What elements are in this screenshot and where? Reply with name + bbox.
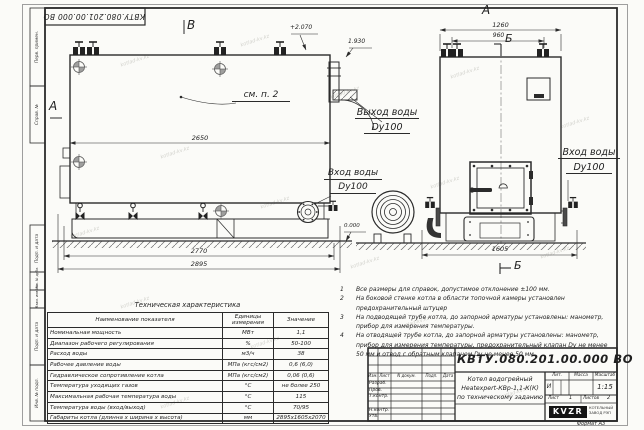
param-name: Расход воды: [48, 349, 223, 360]
dim-2650: 2650: [175, 135, 225, 142]
valve-icon: [537, 44, 549, 57]
valve-icon: [451, 44, 463, 57]
side-view-valves: [71, 42, 338, 220]
param-units: °С: [223, 381, 274, 392]
note-number: 3: [340, 313, 356, 332]
center-mass-icon: [71, 59, 87, 75]
valve-icon: [274, 42, 286, 55]
note-text: На подводящей трубе котла, до запорной а…: [356, 313, 614, 332]
level-mark-top: +2.070: [290, 25, 312, 32]
tb-lit-label: Лит.: [545, 374, 569, 379]
dim-2895: 2895: [174, 261, 224, 268]
param-units: МПа (кгс/см2): [223, 370, 274, 381]
table-row: Рабочее давление водыМПа (кгс/см2)0,6 (6…: [48, 360, 329, 371]
valve-icon: [73, 42, 85, 55]
table-row: Гидравлическое сопротивление котлаМПа (к…: [48, 370, 329, 381]
tech-col-name: Наименование показателя: [48, 313, 223, 328]
tb-row-nkontr: Н.контр.: [369, 409, 389, 414]
drain-valve-icon: [199, 203, 208, 220]
margin-sprav-no: Справ. №: [30, 86, 45, 143]
dim-1260: 1260: [478, 22, 523, 29]
tb-sheets-label: Листов: [583, 397, 599, 402]
param-name: Температура уходящих газов: [48, 381, 223, 392]
note-item: 3 На подводящей трубе котла, до запорной…: [340, 313, 614, 332]
tech-col-units: Единицы измерения: [223, 313, 274, 328]
pipe-flange-left: [436, 208, 440, 226]
param-name: Габариты котла (длинна х ширина х высота…: [48, 413, 223, 424]
valve-icon: [425, 198, 435, 208]
blower-fan: [369, 191, 417, 243]
tech-table: Наименование показателя Единицы измерени…: [47, 312, 329, 424]
table-row: Габариты котла (длинна х ширина х высота…: [48, 413, 329, 424]
dim-1605: 1605: [475, 246, 525, 253]
param-name: Рабочее давление воды: [48, 360, 223, 371]
drain-valve-icon: [76, 203, 85, 220]
table-row: Максимальная рабочая температура воды°С1…: [48, 392, 329, 403]
table-row: Температура воды (вход/выход)°С70/95: [48, 402, 329, 413]
note-number: 4: [340, 331, 356, 359]
valve-icon: [214, 42, 226, 55]
center-mass-icon: [71, 154, 87, 170]
note-text: На боковой стенке котла в области топочн…: [356, 294, 614, 313]
notes-list: 1 Все размеры для справок, допустимое от…: [340, 285, 614, 359]
tb-col-list: Лист: [378, 374, 391, 378]
tb-row-razrab: Разраб.: [369, 382, 387, 387]
ash-box: [464, 217, 534, 241]
param-value: 2895х1605х2070: [274, 413, 329, 424]
format-label: Формат А3: [566, 422, 616, 428]
level-mark-outlet: 1.930: [348, 39, 365, 46]
table-row: Температура уходящих газов°Сне более 250: [48, 381, 329, 392]
param-units: %: [223, 338, 274, 349]
table-row: Диапазон рабочего регулирования%50-100: [48, 338, 329, 349]
tb-col-ndoc: N докум.: [391, 374, 422, 378]
front-view-dimensions: [422, 30, 577, 274]
tb-col-podp: Подп.: [422, 374, 441, 378]
margin-vzam-inv: Взам. инв. №: [30, 290, 45, 308]
note-item: 2 На боковой стенке котла в области топо…: [340, 294, 614, 313]
inlet-flange-right: [563, 208, 567, 226]
side-view-linework: [52, 55, 374, 248]
tb-row-prov: Пров.: [369, 389, 382, 394]
drawing-sheet: kotlad-kv.kz kotlad-kv.kz kotlad-kv.kz k…: [0, 0, 644, 430]
doc-number: КВТУ.080.201.00.000 ВО: [457, 353, 615, 366]
param-value: 0,06 (0,6): [274, 370, 329, 381]
drain-valve-icon: [129, 203, 138, 220]
tb-col-data: Дата: [441, 374, 455, 378]
param-name: Гидравлическое сопротивление котла: [48, 370, 223, 381]
door-hinge: [529, 171, 533, 179]
margin-podp-data-2: Подп. и дата: [30, 308, 45, 365]
water-inlet-side-label: Вход воды: [324, 169, 382, 180]
param-units: м3/ч: [223, 349, 274, 360]
water-inlet-front-label: Вход воды: [558, 148, 620, 159]
doc-description-line1: Котел водогрейный: [456, 376, 544, 385]
param-value: 50-100: [274, 338, 329, 349]
param-value: 38: [274, 349, 329, 360]
valve-icon: [87, 42, 99, 55]
param-units: МПа (кгс/см2): [223, 360, 274, 371]
tb-row-tkontr: Т.контр.: [369, 395, 389, 400]
param-value: 115: [274, 392, 329, 403]
tech-table-title: Техническая характеристика: [47, 302, 328, 309]
view-direction-a: А: [49, 100, 57, 113]
top-stamp-doc-number: КВТУ.080.201.00.000 ВО: [45, 8, 145, 25]
margin-perv-primen: Перв. примен.: [30, 8, 45, 86]
section-label-b-bottom: Б: [514, 260, 522, 272]
tb-sheet-label: Лист: [548, 397, 559, 402]
section-label-b-top: Б: [505, 33, 513, 45]
center-mass-icon: [212, 61, 228, 77]
param-units: мм: [223, 413, 274, 424]
param-units: °С: [223, 392, 274, 403]
view-label-a: А: [482, 4, 490, 17]
center-mass-icon: [213, 203, 229, 219]
tb-col-izm: Изм.: [368, 374, 378, 378]
company-name: КОТЕЛЬНЫЙ ЗАВОД РЭП: [589, 406, 616, 416]
note-item: 1 Все размеры для справок, допустимое от…: [340, 285, 614, 294]
view-label-b: В: [187, 19, 195, 32]
valve-icon: [568, 198, 578, 208]
tech-table-header-row: Наименование показателя Единицы измерени…: [48, 313, 329, 328]
company-line2: ЗАВОД РЭП: [589, 411, 616, 416]
doc-description: Котел водогрейный Heatexpert-КВр-1,1-К(К…: [456, 376, 544, 403]
param-value: не более 250: [274, 381, 329, 392]
table-row: Расход водым3/ч38: [48, 349, 329, 360]
param-name: Номинальная мощность: [48, 328, 223, 339]
table-row: Номинальная мощностьМВт1,1: [48, 328, 329, 339]
doc-description-line3: по техническому заданию: [456, 394, 544, 403]
note-number: 1: [340, 285, 356, 294]
level-mark-zero: 0.000: [344, 223, 360, 229]
margin-inv-podl: Инв. № подл.: [30, 365, 45, 421]
tb-scale-label: Масштаб: [593, 374, 617, 379]
param-value: 0,6 (6,0): [274, 360, 329, 371]
water-inlet-side-dn: Dy100: [330, 183, 376, 194]
door-handle: [472, 188, 492, 192]
tb-sheet-value: 1: [569, 396, 572, 402]
param-units: МВт: [223, 328, 274, 339]
note-text: Все размеры для справок, допустимое откл…: [356, 285, 614, 294]
note-number: 2: [340, 294, 356, 313]
dim-2770: 2770: [174, 248, 224, 255]
doc-description-line2: Heatexpert-КВр-1,1-К(К): [456, 385, 544, 394]
ground-hatch-right: [356, 244, 586, 251]
param-units: °С: [223, 402, 274, 413]
tech-col-value: Значение: [274, 313, 329, 328]
side-view-dimensions: [50, 20, 382, 273]
door-hinge: [529, 197, 533, 205]
tb-scale-value: 1:15: [593, 384, 617, 392]
param-value: 70/95: [274, 402, 329, 413]
tb-mass-label: Масса: [569, 374, 593, 379]
param-name: Температура воды (вход/выход): [48, 402, 223, 413]
margin-podp-data-1: Подп. и дата: [30, 225, 45, 272]
see-note-ref: см. п. 2: [232, 91, 290, 102]
front-view-valves: [425, 44, 578, 208]
tb-lit-value: И: [545, 384, 553, 391]
tb-row-utv: Утв.: [369, 415, 378, 420]
water-inlet-front-dn: Dy100: [566, 163, 612, 174]
dim-960: 960: [476, 33, 521, 40]
water-outlet-label: Выход воды: [355, 108, 419, 119]
param-name: Диапазон рабочего регулирования: [48, 338, 223, 349]
param-value: 1,1: [274, 328, 329, 339]
tb-sheets-value: 2: [607, 396, 610, 402]
door-latch: [499, 184, 507, 188]
water-outlet-dn: Dy100: [364, 123, 410, 134]
kvzr-logo: KVZR: [549, 406, 587, 418]
param-name: Максимальная рабочая температура воды: [48, 392, 223, 403]
